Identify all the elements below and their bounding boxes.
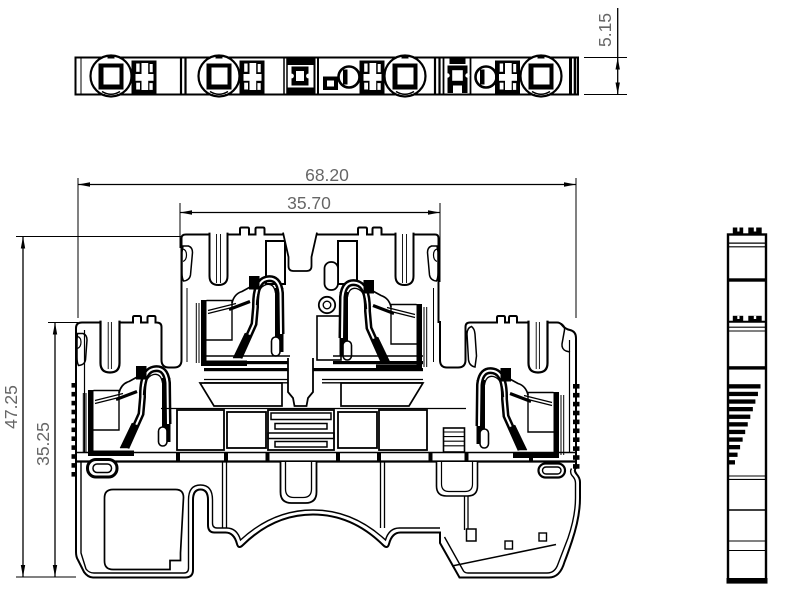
svg-text:35.25: 35.25 — [33, 422, 53, 466]
svg-text:35.70: 35.70 — [287, 193, 331, 213]
svg-text:68.20: 68.20 — [305, 165, 349, 185]
svg-text:5.15: 5.15 — [595, 13, 615, 47]
svg-text:47.25: 47.25 — [1, 385, 21, 429]
